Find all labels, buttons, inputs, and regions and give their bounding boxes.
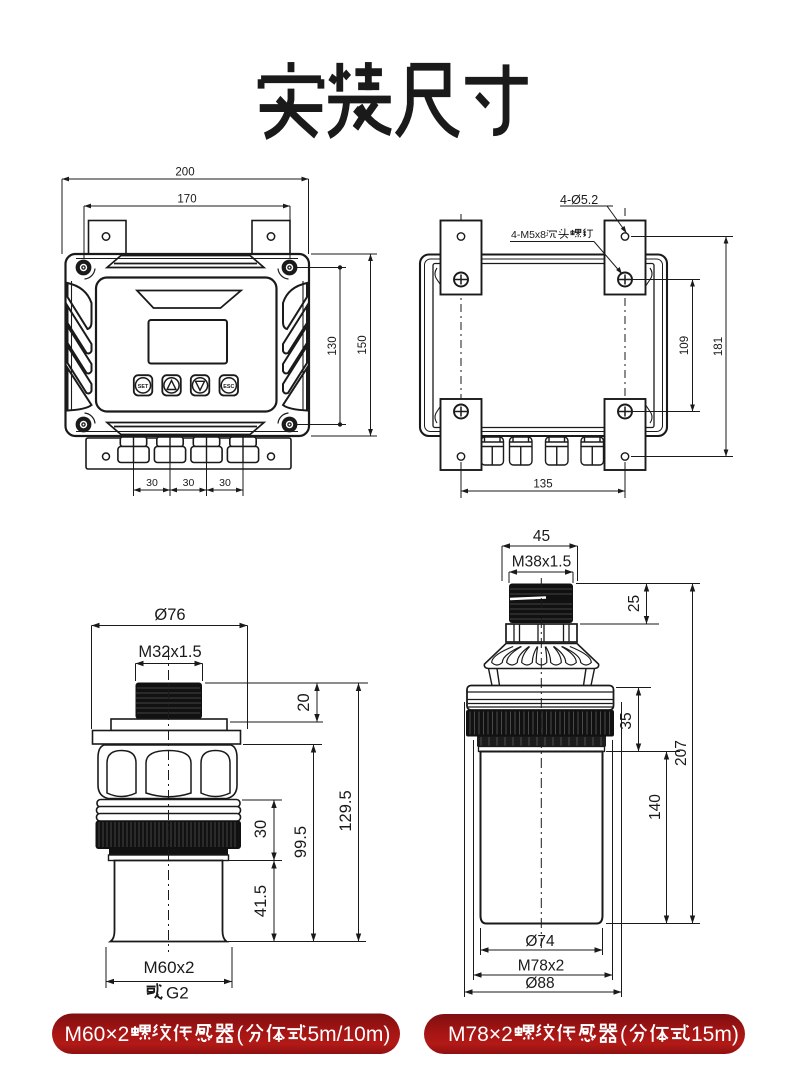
svg-text:181: 181: [713, 337, 725, 356]
svg-text:30: 30: [183, 477, 195, 489]
svg-text:99.5: 99.5: [292, 826, 310, 858]
svg-text:Ø88: Ø88: [525, 975, 554, 992]
svg-text:45: 45: [533, 528, 550, 545]
svg-text:ESC: ESC: [223, 384, 234, 390]
svg-text:(: (: [620, 1023, 627, 1046]
svg-text:140: 140: [647, 794, 664, 820]
svg-text:5m/10m): 5m/10m): [308, 1023, 391, 1046]
svg-text:41.5: 41.5: [252, 885, 270, 917]
svg-text:M32x1.5: M32x1.5: [138, 643, 201, 661]
svg-text:135: 135: [533, 479, 552, 491]
svg-text:30: 30: [252, 820, 270, 838]
svg-text:130: 130: [327, 336, 339, 355]
svg-text:M60×2: M60×2: [65, 1023, 130, 1046]
svg-text:200: 200: [175, 167, 194, 179]
svg-text:Ø74: Ø74: [525, 933, 555, 950]
svg-text:207: 207: [673, 740, 690, 766]
svg-text:4-M5x8: 4-M5x8: [511, 229, 546, 241]
svg-text:170: 170: [177, 194, 196, 206]
svg-text:30: 30: [146, 477, 158, 489]
svg-text:4-Ø5.2: 4-Ø5.2: [560, 193, 598, 207]
svg-text:20: 20: [295, 693, 313, 711]
svg-text:129.5: 129.5: [337, 790, 355, 831]
svg-text:25: 25: [626, 595, 643, 612]
svg-text:109: 109: [679, 336, 691, 355]
svg-text:M38x1.5: M38x1.5: [512, 554, 571, 571]
svg-text:G2: G2: [166, 984, 189, 1003]
svg-text:30: 30: [219, 477, 231, 489]
svg-text:15m): 15m): [691, 1023, 739, 1046]
svg-text:M78x2: M78x2: [518, 958, 565, 975]
svg-text:M60x2: M60x2: [143, 958, 194, 977]
svg-text:M78×2: M78×2: [448, 1023, 513, 1046]
svg-text:(: (: [237, 1023, 244, 1046]
svg-text:150: 150: [357, 335, 369, 354]
svg-text:35: 35: [618, 712, 635, 729]
svg-text:Ø76: Ø76: [154, 606, 185, 624]
svg-text:SET: SET: [138, 384, 149, 390]
